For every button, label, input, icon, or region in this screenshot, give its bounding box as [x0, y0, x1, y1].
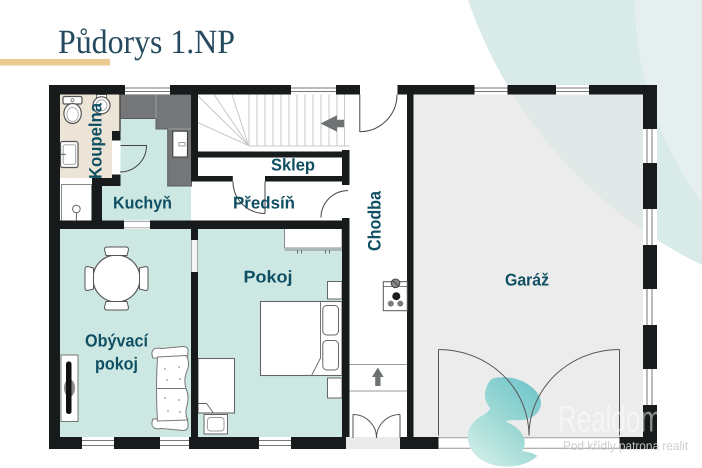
- svg-text:pokoj: pokoj: [95, 354, 138, 374]
- svg-text:Kuchyň: Kuchyň: [113, 194, 172, 213]
- svg-text:Garáž: Garáž: [505, 271, 549, 290]
- svg-text:Pod křídly patrona realit: Pod křídly patrona realit: [563, 439, 688, 453]
- svg-text:Půdorys 1.NP: Půdorys 1.NP: [58, 24, 235, 61]
- svg-text:Obývací: Obývací: [85, 331, 149, 351]
- svg-text:Koupelna: Koupelna: [86, 102, 106, 179]
- svg-text:Chodba: Chodba: [365, 190, 385, 251]
- svg-text:Předsíň: Předsíň: [233, 194, 295, 213]
- svg-text:Pokoj: Pokoj: [244, 268, 293, 287]
- svg-text:Realdom: Realdom: [558, 399, 662, 440]
- svg-text:Sklep: Sklep: [271, 156, 315, 175]
